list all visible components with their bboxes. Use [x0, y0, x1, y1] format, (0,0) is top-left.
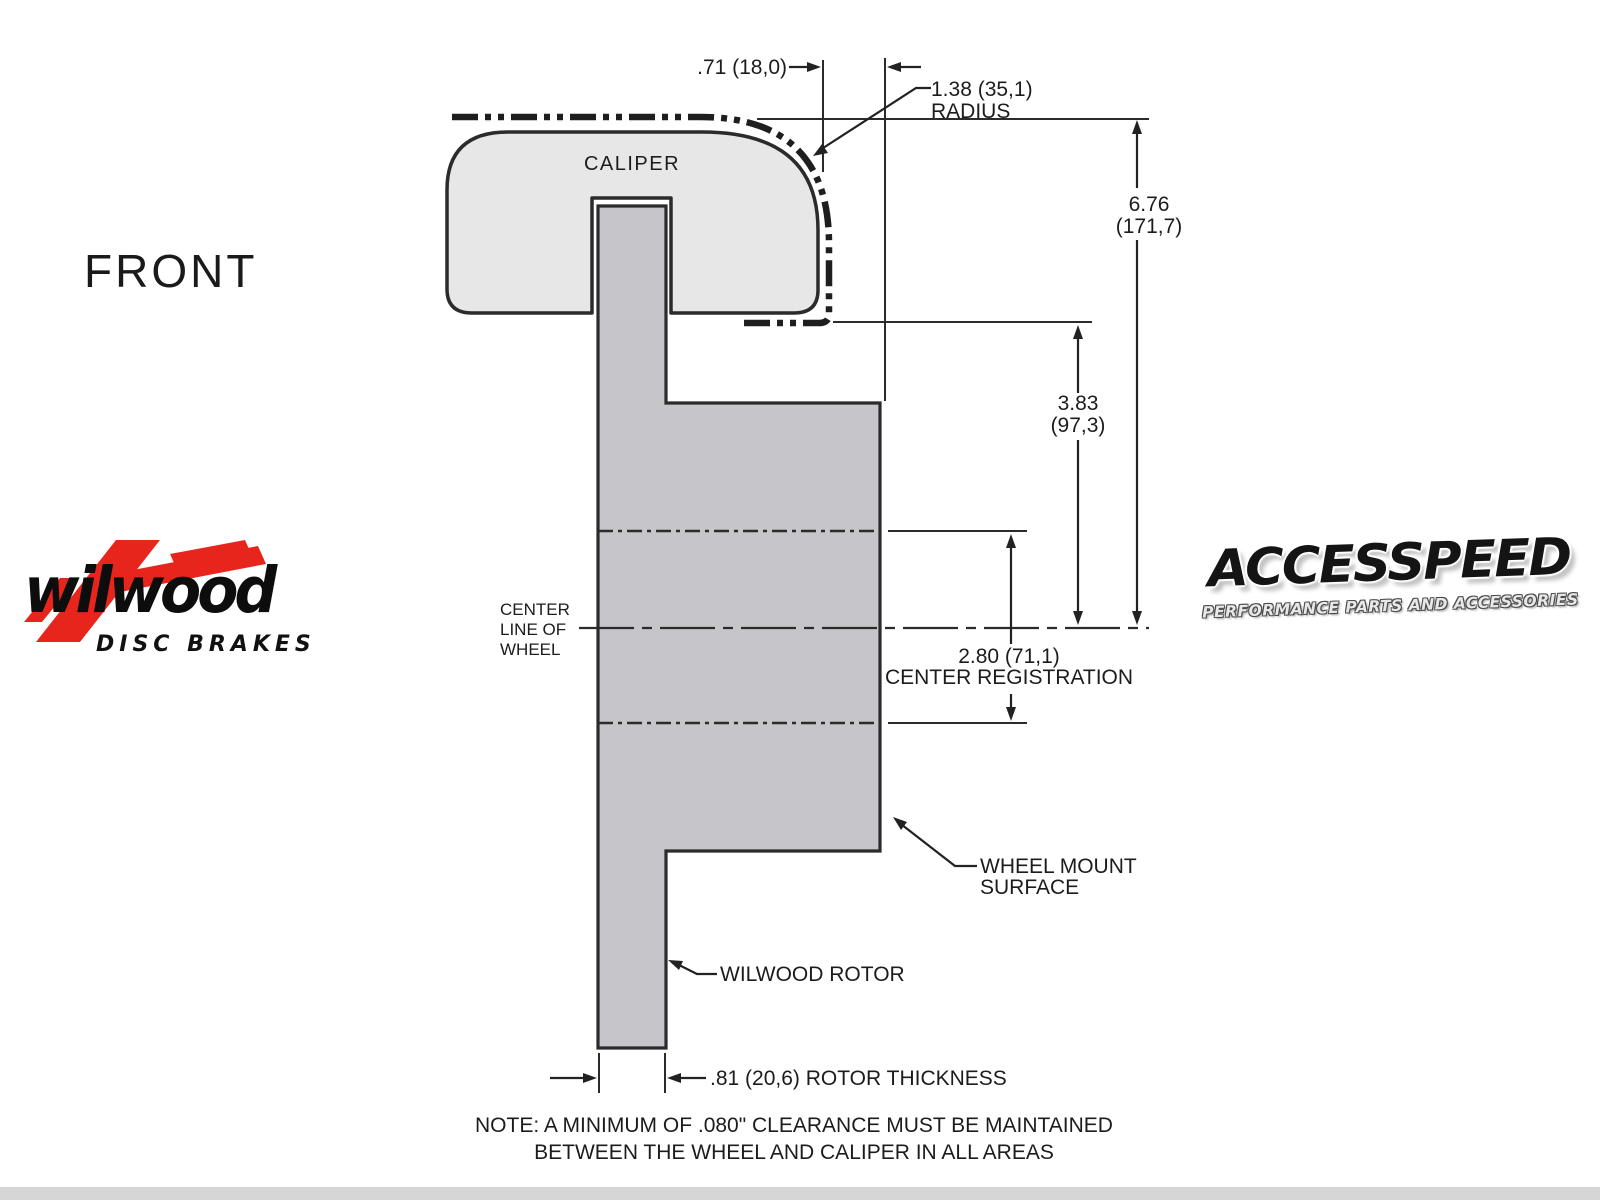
dim-overall-height-mm: (171,7): [1116, 215, 1183, 238]
dim-radius-value: 1.38 (35,1): [931, 78, 1033, 101]
dim-rotor-thickness: .81 (20,6) ROTOR THICKNESS: [710, 1067, 1007, 1090]
note-line-1: NOTE: A MINIMUM OF .080" CLEARANCE MUST …: [475, 1114, 1113, 1137]
accesspeed-logo: ACCESSPEED PERFORMANCE PARTS AND ACCESSO…: [1186, 527, 1594, 663]
centerline-label-3: WHEEL: [500, 640, 560, 659]
view-orientation-label: FRONT: [84, 244, 257, 298]
wilwood-rotor-label: WILWOOD ROTOR: [720, 963, 905, 986]
dim-center-registration-value: 2.80 (71,1): [958, 645, 1060, 668]
wilwood-logo: wilwood DISC BRAKES: [20, 526, 336, 672]
centerline-label-2: LINE OF: [500, 620, 566, 639]
caliper-label: CALIPER: [584, 153, 680, 175]
dim-wheel-to-mount: .71 (18,0): [697, 56, 787, 79]
wheel-mount-surface-label-1: WHEEL MOUNT: [980, 855, 1137, 878]
note-line-2: BETWEEN THE WHEEL AND CALIPER IN ALL ARE…: [534, 1141, 1054, 1164]
wilwood-tagline: DISC BRAKES: [96, 632, 316, 657]
centerline-label-1: CENTER: [500, 600, 570, 619]
dim-center-registration-label: CENTER REGISTRATION: [885, 666, 1133, 689]
dim-mount-to-center-in: 3.83: [1058, 392, 1099, 415]
dim-radius-word: RADIUS: [931, 100, 1010, 123]
bottom-border-strip: [0, 1187, 1600, 1200]
dim-overall-height-in: 6.76: [1129, 193, 1170, 216]
wheel-mount-surface-label-2: SURFACE: [980, 876, 1079, 899]
wilwood-wordmark: wilwood: [24, 554, 336, 628]
dim-mount-to-center-mm: (97,3): [1051, 414, 1106, 437]
